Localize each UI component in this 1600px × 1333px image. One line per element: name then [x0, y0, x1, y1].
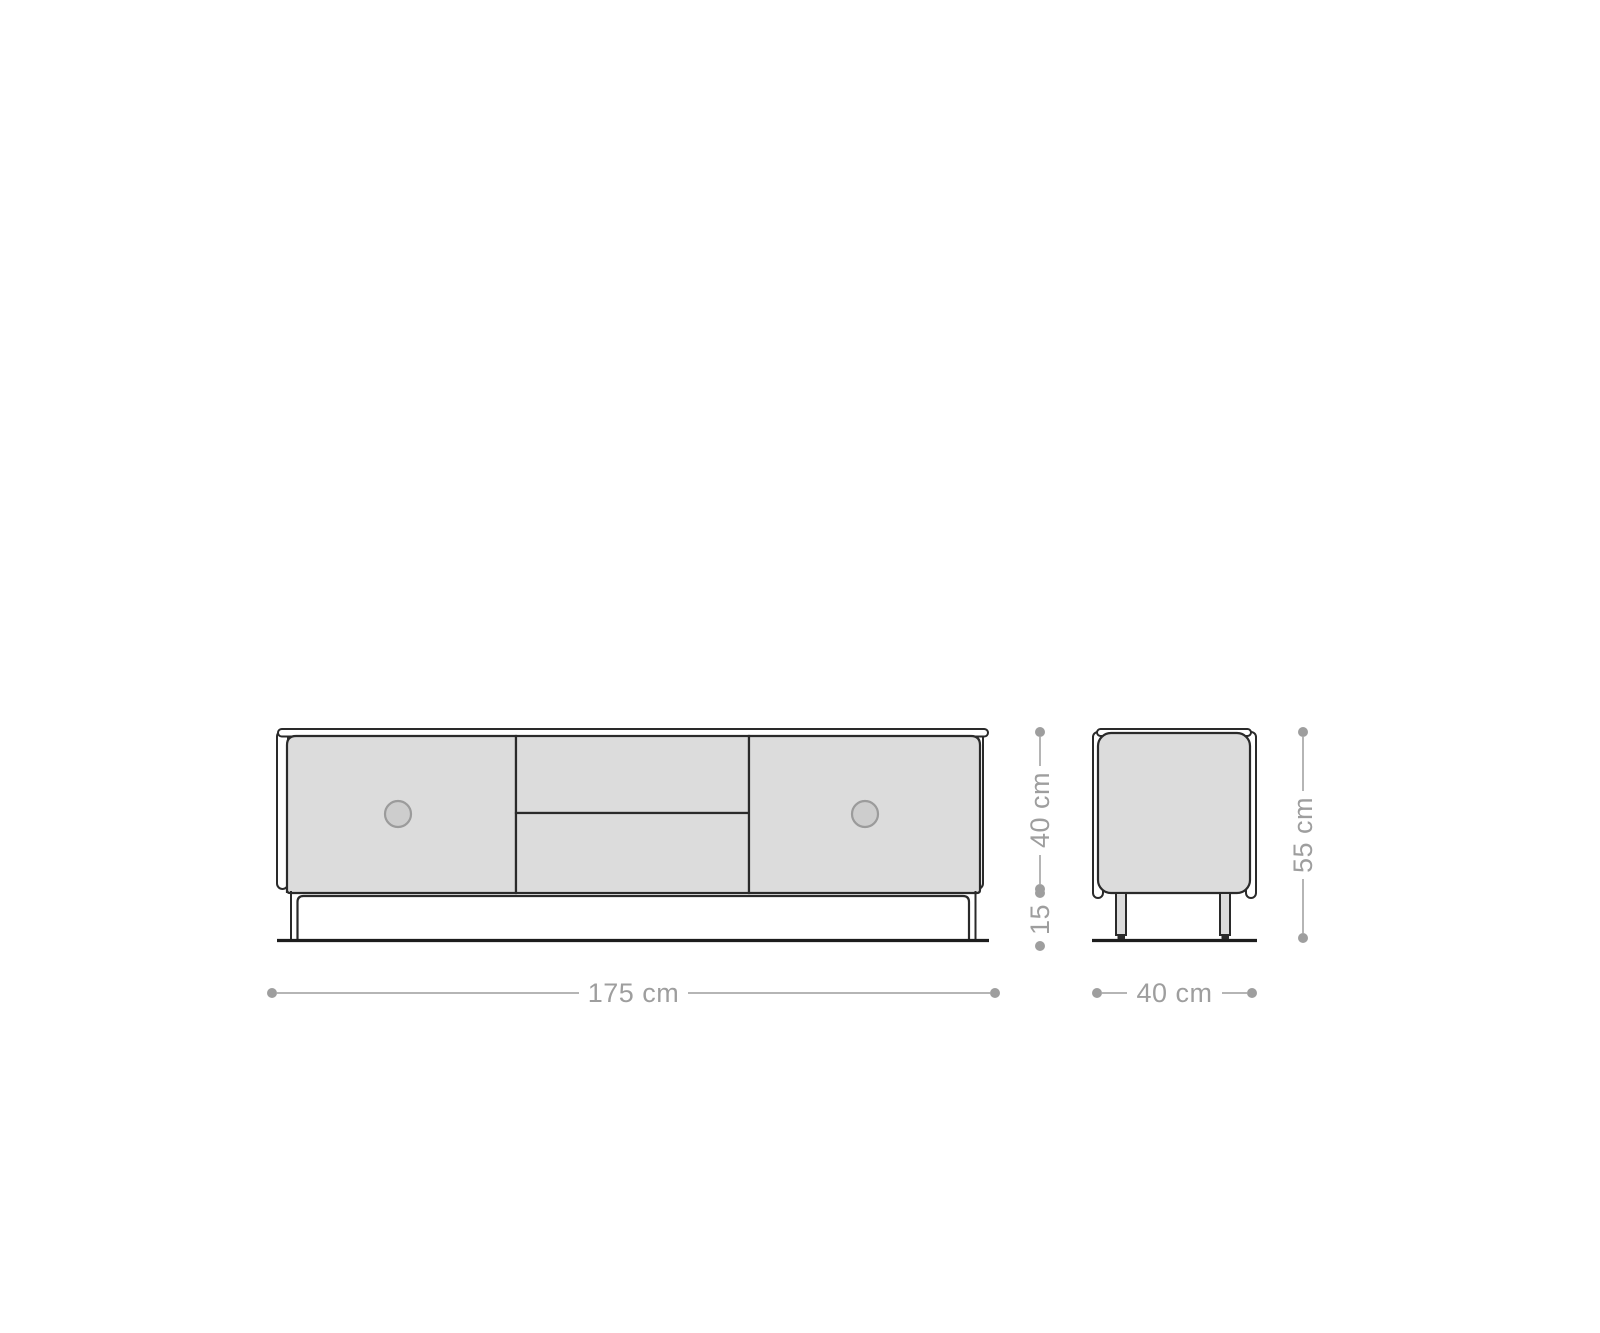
- total-height-dimension: 55 cm: [1298, 727, 1308, 943]
- body-height-dimension-label: 40 cm: [1027, 772, 1054, 848]
- dimension-endpoint-dot: [267, 988, 277, 998]
- dimension-endpoint-dot: [1092, 988, 1102, 998]
- side-leg-right: [1220, 893, 1230, 935]
- depth-dimension: 40 cm: [1092, 980, 1257, 1006]
- dimension-endpoint-dot: [1035, 941, 1045, 951]
- dimension-line: [1302, 737, 1304, 791]
- dimension-endpoint-dot: [990, 988, 1000, 998]
- side-leg-left: [1116, 893, 1126, 935]
- side-view-drawing: [1080, 698, 1270, 950]
- dimension-endpoint-dot: [1247, 988, 1257, 998]
- knob-left-icon: [385, 801, 411, 827]
- dimension-line: [688, 992, 990, 994]
- side-foot-left: [1118, 935, 1126, 940]
- front-legs: [291, 891, 976, 940]
- knob-right-icon: [852, 801, 878, 827]
- front-view-drawing: [260, 698, 1000, 950]
- drawer-bottom: [516, 813, 749, 893]
- side-foot-right: [1222, 935, 1230, 940]
- dimension-line: [1039, 855, 1041, 884]
- dimension-endpoint-dot: [1035, 888, 1045, 898]
- depth-dimension-label: 40 cm: [1136, 980, 1212, 1007]
- body-height-dimension: 40 cm: [1035, 727, 1045, 894]
- width-dimension: 175 cm: [267, 980, 1000, 1006]
- dimension-line: [1222, 992, 1247, 994]
- dimension-diagram: 175 cm 40 cm 40 cm 15 55 cm: [0, 0, 1600, 1333]
- dimension-endpoint-dot: [1298, 933, 1308, 943]
- dimension-line: [1302, 879, 1304, 933]
- side-body: [1098, 733, 1250, 893]
- leg-height-dimension: 15: [1035, 888, 1045, 945]
- width-dimension-label: 175 cm: [588, 980, 680, 1007]
- dimension-line: [1039, 737, 1041, 766]
- total-height-dimension-label: 55 cm: [1290, 797, 1317, 873]
- drawer-top: [516, 736, 749, 813]
- dimension-line: [1102, 992, 1127, 994]
- base-rail: [298, 896, 970, 940]
- dimension-line: [277, 992, 579, 994]
- dimension-endpoint-dot: [1035, 727, 1045, 737]
- dimension-endpoint-dot: [1298, 727, 1308, 737]
- leg-height-dimension-label: 15: [1027, 904, 1054, 935]
